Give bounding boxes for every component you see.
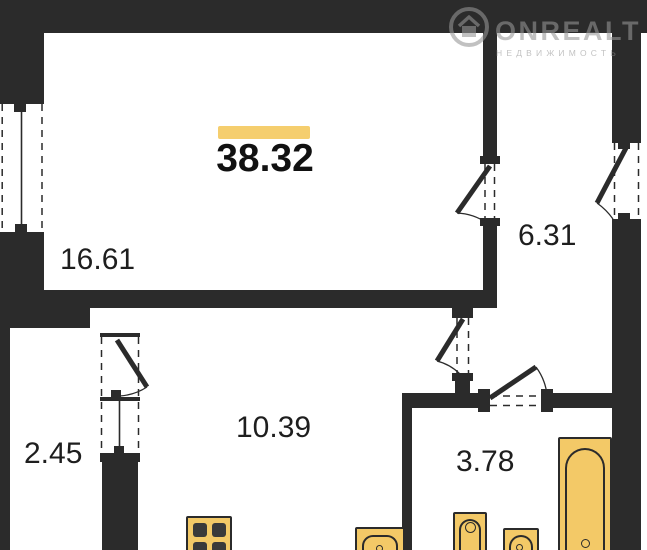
- kitchen-door: [437, 318, 469, 374]
- stove-icon: [186, 516, 232, 550]
- living-room-area-label: 16.61: [60, 245, 135, 275]
- brand-tagline: НЕДВИЖИМОСТЬ: [496, 49, 620, 58]
- hallway-area-label: 6.31: [518, 221, 576, 251]
- kitchen-sink-icon: [355, 527, 405, 550]
- kitchen-living-area-label: 10.39: [236, 413, 311, 443]
- floor-plan: 38.32 16.61 6.31 10.39 2.45 3.78 ONREALT…: [0, 0, 647, 550]
- total-area-label: 38.32: [195, 139, 335, 178]
- brand-name: ONREALT: [495, 18, 641, 45]
- bathtub-icon: [558, 437, 612, 550]
- living-room-door: [457, 164, 495, 223]
- brand-watermark: ONREALT НЕДВИЖИМОСТЬ: [443, 3, 647, 61]
- washbasin-icon: [453, 512, 487, 550]
- bathroom-area-label: 3.78: [456, 447, 514, 477]
- house-in-circle-icon: [447, 5, 491, 49]
- bathroom-door: [490, 367, 547, 406]
- balcony-area-label: 2.45: [24, 439, 82, 469]
- living-room-window: [2, 104, 42, 232]
- toilet-icon: [503, 528, 539, 550]
- balcony-door-window: [102, 337, 148, 453]
- hallway-balcony-door: [597, 143, 639, 219]
